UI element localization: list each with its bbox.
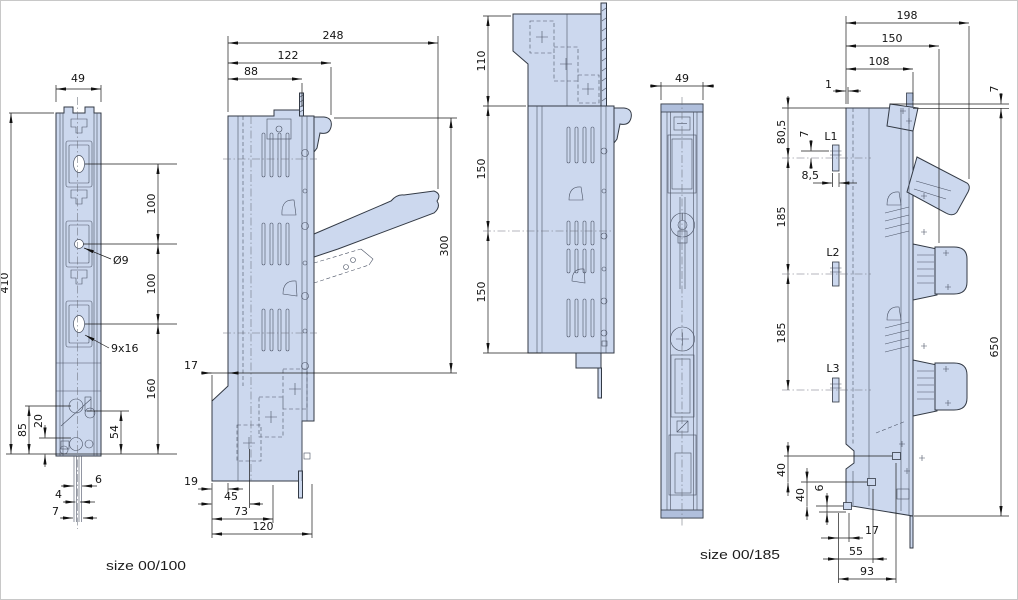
fig5-terminal-2-label: L2	[826, 246, 839, 259]
fig5-dim-top-offset-label: 7	[988, 86, 1001, 93]
fig4-dim-width-label: 49	[675, 72, 689, 85]
caption-size-00-100: size 00/100	[106, 558, 186, 573]
fig5-dim-stud-offset-label: 8,5	[802, 169, 820, 182]
fuse-window-hole-mid	[75, 240, 84, 249]
fig2-dim-base-step1-label: 45	[224, 490, 238, 503]
fig1-dim-base-height-label: 54	[108, 425, 121, 439]
side-hook	[614, 108, 631, 143]
fuse-window-slot-top	[74, 156, 85, 173]
fig2-dim-depth-mid-label: 122	[278, 49, 299, 62]
mounting-rail	[601, 3, 607, 111]
fig2-dim-depth-front-label: 88	[244, 65, 258, 78]
fig2-dim-height-label: 300	[438, 236, 451, 257]
fuse-switch-dimension-drawing: 49 410 100 100 160 54 85 20 6 4 7 Ø9 9x1…	[1, 1, 1018, 600]
fig1-dim-hole-offset-label: 85	[16, 423, 29, 437]
fig5-terminal-3-label: L3	[826, 362, 839, 375]
fig5-dim-base-x2-label: 55	[849, 545, 863, 558]
fig1-dim-pin-inner-label: 4	[55, 488, 62, 501]
fig5-dim-base-a-label: 40	[775, 463, 788, 477]
fuse-window-slot-bottom	[74, 316, 85, 333]
view-side-rotated: 110 150 150	[475, 3, 631, 398]
fig5-dim-base-x3-label: 93	[860, 565, 874, 578]
caption-size-00-185: size 00/185	[700, 547, 780, 562]
fig5-dim-top-to-l1-label: 80,5	[775, 120, 788, 145]
fig1-dim-slot-offset-label: 20	[32, 414, 45, 428]
fig5-dim-l1-offset-label: 7	[798, 131, 811, 138]
lower-rod	[598, 368, 602, 398]
fig3-dim-seg-top-label: 110	[475, 51, 488, 72]
view-side-00-185: 198 150 108 1 7 80,5 7 8,5 L1 L2 L3 185 …	[775, 9, 1009, 583]
fig5-dim-height-label: 650	[988, 337, 1001, 358]
fig2-dim-base-step2-label: 73	[234, 505, 248, 518]
top-strip	[907, 93, 914, 108]
fig2-dim-base-depth-label: 120	[253, 520, 274, 533]
fig1-dim-pitch-bottom-label: 160	[145, 379, 158, 400]
fig2-dim-depth-total-label: 248	[323, 29, 344, 42]
fig2-dim-base-offset-label: 19	[184, 475, 198, 488]
view-side-00-100: 248 122 88 300 17 19 45 73 120	[184, 29, 457, 538]
bottom-rod-185	[910, 516, 913, 548]
fig3-dim-seg-bottom-label: 150	[475, 282, 488, 303]
strip-body	[846, 108, 913, 516]
l2-bump	[913, 244, 937, 300]
fig5-dim-base-x1-label: 17	[865, 524, 879, 537]
fig5-dim-pitch-a-label: 185	[775, 207, 788, 228]
switch-body-side	[212, 110, 314, 481]
fig5-dim-pitch-b-label: 185	[775, 323, 788, 344]
fig5-dim-depth-front-label: 108	[869, 55, 890, 68]
technical-drawing-page: 49 410 100 100 160 54 85 20 6 4 7 Ø9 9x1…	[0, 0, 1018, 600]
fig5-dim-base-c-label: 6	[813, 485, 826, 492]
foot-block	[576, 353, 601, 368]
fig5-dim-depth-total-label: 198	[897, 9, 918, 22]
fig1-dim-pin-width-label: 6	[95, 473, 102, 486]
fig1-dim-height-label: 410	[1, 273, 11, 294]
fig5-dim-edge-offset-label: 1	[825, 78, 832, 91]
fig1-slot-size-label: 9x16	[111, 342, 139, 355]
fig1-dim-width-label: 49	[71, 72, 85, 85]
top-rod	[300, 93, 304, 116]
view-front-00-100: 49 410 100 100 160 54 85 20 6 4 7 Ø9 9x1…	[1, 72, 186, 573]
view-front-00-185: 49 size 00/185	[650, 72, 780, 562]
l1-handle	[907, 157, 969, 215]
fig5-terminal-1-label: L1	[824, 130, 837, 143]
fig1-dim-pitch-top-label: 100	[145, 194, 158, 215]
operating-handle	[314, 191, 439, 257]
fig5-dim-base-b-label: 40	[794, 488, 807, 502]
l3-bump	[913, 360, 937, 416]
fig2-dim-foot-offset-label: 17	[184, 359, 198, 372]
fig1-hole-diameter-label: Ø9	[113, 254, 129, 267]
fig1-dim-pin-outer-label: 7	[52, 505, 59, 518]
top-hook	[314, 117, 331, 152]
fig3-dim-seg-mid-label: 150	[475, 159, 488, 180]
fig5-dim-depth-mid-label: 150	[882, 32, 903, 45]
fig1-dim-pitch-mid-label: 100	[145, 274, 158, 295]
